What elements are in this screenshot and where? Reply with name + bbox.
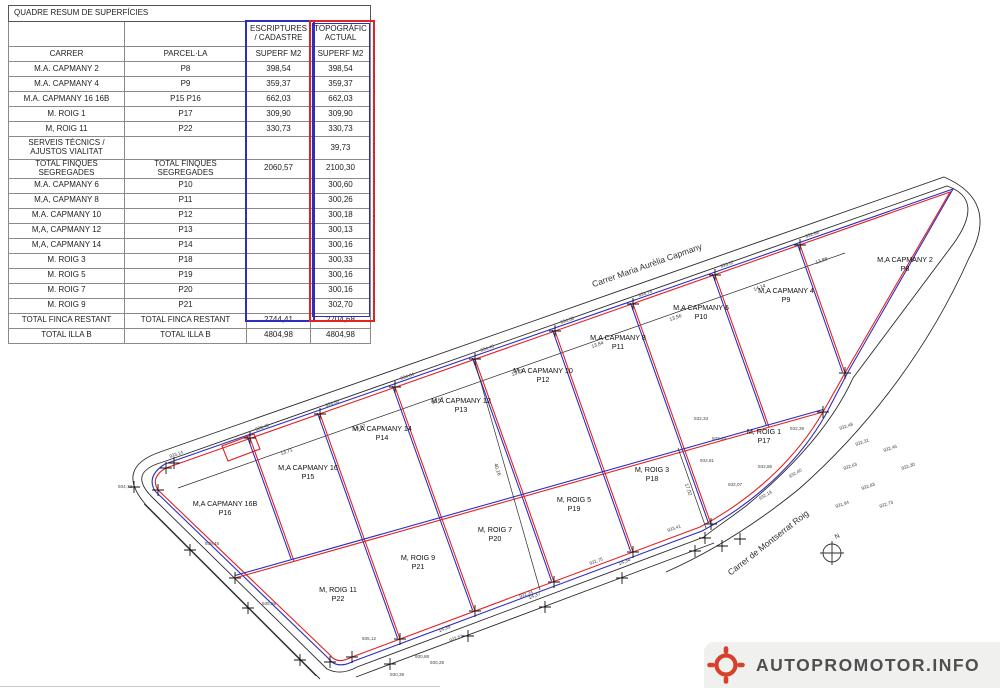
elevation-label: 932,48 — [839, 421, 854, 430]
division-line-blue — [522, 495, 552, 581]
table-cell-topografic: 300,60 — [311, 178, 371, 193]
elevation-label: 931,94 — [835, 499, 850, 508]
parcel-name-label: M, ROIG 5 — [557, 495, 591, 504]
table-cell-escriptures — [247, 208, 311, 223]
north-label: N — [834, 532, 841, 540]
table-cell-carrer: TOTAL FINCA RESTANT — [9, 313, 125, 328]
table-cell-escriptures — [247, 193, 311, 208]
survey-cross-icon — [627, 298, 639, 310]
table-cell-escriptures — [247, 253, 311, 268]
table-cell-topografic: 39,73 — [311, 137, 371, 160]
table-row: M. ROIG 3P18300,33 — [9, 253, 371, 268]
table-cell-parcella: P13 — [125, 223, 247, 238]
table-cell-parcella: P15 P16 — [125, 92, 247, 107]
table-row: SERVEIS TÈCNICS / AJUSTOS VIALITAT39,73 — [9, 137, 371, 160]
table-row: M.A. CAPMANY 10P12300,18 — [9, 208, 371, 223]
parcel-name-label: M,A CAPMANY 16 — [278, 463, 338, 472]
watermark-logo: AUTOPROMOTOR.INFO — [704, 642, 1000, 688]
table-cell-topografic: 300,16 — [311, 283, 371, 298]
table-cell-escriptures: 2060,57 — [247, 160, 311, 179]
table-cell-parcella: P20 — [125, 283, 247, 298]
elevation-label: 932,19 — [758, 489, 773, 501]
dimension-label: 14,34 — [618, 557, 632, 567]
table-cell-topografic: 2100,30 — [311, 160, 371, 179]
parcel-name-label: M, ROIG 11 — [319, 585, 357, 594]
table-cell-parcella: P17 — [125, 107, 247, 122]
table-cell-escriptures: 398,54 — [247, 62, 311, 77]
elevation-label: 935,12 — [362, 636, 376, 641]
survey-cross-icon — [716, 540, 728, 552]
table-cell-parcella: P10 — [125, 178, 247, 193]
table-cell-escriptures: 359,37 — [247, 77, 311, 92]
logo-text: AUTOPROMOTOR.INFO — [756, 655, 980, 676]
division-line-red — [442, 519, 475, 611]
table-cell-carrer: M. ROIG 1 — [9, 107, 125, 122]
parcel-code-label: P11 — [612, 342, 624, 351]
table-cell-carrer: M,A, CAPMANY 12 — [9, 223, 125, 238]
table-row: M,A, CAPMANY 8P11300,26 — [9, 193, 371, 208]
table-cell-carrer: M.A. CAPMANY 2 — [9, 62, 125, 77]
table-cell-carrer: TOTAL ILLA B — [9, 328, 125, 343]
table-cell-carrer: M.A. CAPMANY 16 16B — [9, 92, 125, 107]
table-cell-carrer: M,A, CAPMANY 14 — [9, 238, 125, 253]
survey-cross-icon — [384, 658, 396, 670]
table-cell-topografic: 300,26 — [311, 193, 371, 208]
elevation-label: 932,81 — [700, 458, 714, 463]
elevation-label: 932,33 — [694, 416, 708, 421]
table-cell-escriptures: 309,90 — [247, 107, 311, 122]
survey-cross-icon — [817, 406, 829, 418]
survey-cross-icon — [539, 601, 551, 613]
table-cell-escriptures — [247, 298, 311, 313]
table-row: M. ROIG 9P21302,70 — [9, 298, 371, 313]
parcel-code-label: P10 — [695, 312, 708, 321]
elevation-label: 932,52 — [449, 633, 464, 643]
elevation-label: 932,30 — [901, 461, 916, 470]
elevation-label: 932,46 — [883, 443, 898, 452]
division-line-red — [365, 541, 400, 639]
table-row: M.A. CAPMANY 4P9359,37359,37 — [9, 77, 371, 92]
survey-cross-icon — [314, 408, 326, 420]
parcel-code-label: P19 — [568, 504, 581, 513]
target-icon — [704, 645, 748, 685]
division-line-blue — [363, 540, 398, 638]
empty-cell — [9, 22, 125, 47]
table-row: TOTAL FINCA RESTANTTOTAL FINCA RESTANT27… — [9, 313, 371, 328]
parcel-name-label: M,A CAPMANY 10 — [513, 366, 573, 375]
table-row: M. ROIG 7P20300,16 — [9, 283, 371, 298]
dimension-label: 17,02 — [683, 483, 693, 497]
survey-cross-icon — [689, 545, 701, 557]
survey-cross-icon — [160, 462, 172, 474]
elevation-label: 930,28 — [430, 660, 444, 665]
table-cell-parcella: P12 — [125, 208, 247, 223]
table-cell-topografic: 398,54 — [311, 62, 371, 77]
col-header-parcella: PARCEL·LA — [125, 47, 247, 62]
elevation-label: 930,39 — [390, 672, 404, 677]
table-cell-parcella: P19 — [125, 268, 247, 283]
table-cell-escriptures — [247, 238, 311, 253]
division-line-blue — [631, 303, 683, 450]
parcel-name-label: M,A CAPMANY 14 — [352, 424, 412, 433]
parcel-name-label: M,A CAPMANY 4 — [758, 286, 814, 295]
division-line-red — [524, 496, 554, 582]
elevation-label: 930,88 — [415, 654, 429, 659]
parcel-name-label: M, ROIG 1 — [747, 427, 781, 436]
table-cell-carrer: M, ROIG 11 — [9, 122, 125, 137]
col-header-carrer: CARRER — [9, 47, 125, 62]
table-cell-parcella: P11 — [125, 193, 247, 208]
division-line-blue — [440, 518, 473, 610]
table-row: M.A. CAPMANY 6P10300,60 — [9, 178, 371, 193]
table-cell-parcella: TOTAL FINQUES SEGREGADES — [125, 160, 247, 179]
table-cell-carrer: M,A, CAPMANY 8 — [9, 193, 125, 208]
table-cell-topografic: 302,70 — [311, 298, 371, 313]
parcel-name-label: M,A CAPMANY 8 — [590, 333, 646, 342]
division-line-red — [605, 473, 633, 552]
elevation-label: 932,07 — [728, 482, 742, 487]
table-cell-parcella: P14 — [125, 238, 247, 253]
survey-cross-icon — [462, 630, 474, 642]
elevation-label: 932,63 — [843, 461, 858, 470]
sheet-edge-line — [0, 686, 440, 687]
division-line-red — [800, 245, 845, 373]
table-cell-escriptures: 2744,41 — [247, 313, 311, 328]
table-cell-topografic: 300,16 — [311, 238, 371, 253]
table-cell-topografic: 662,03 — [311, 92, 371, 107]
division-line-blue — [713, 274, 767, 426]
table-cell-topografic: 330,73 — [311, 122, 371, 137]
col-header-superf-topografic: SUPERF M2 — [311, 47, 371, 62]
parcel-code-label: P14 — [376, 433, 389, 442]
table-row: TOTAL FINQUES SEGREGADESTOTAL FINQUES SE… — [9, 160, 371, 179]
header-topografic: TOPOGRÀFIC ACTUAL — [311, 22, 371, 47]
parcel-name-label: M, ROIG 3 — [635, 465, 669, 474]
parcel-code-label: P9 — [782, 295, 791, 304]
table-cell-carrer: M. ROIG 7 — [9, 283, 125, 298]
survey-cross-icon — [346, 651, 358, 663]
table-cell-topografic: 2704,68 — [311, 313, 371, 328]
parcel-name-label: M, ROIG 9 — [401, 553, 435, 562]
division-line-red — [395, 387, 442, 519]
table-title: QUADRE RESUM DE SUPERFÍCIES — [9, 6, 371, 22]
table-cell-escriptures — [247, 178, 311, 193]
table-row: M,A, CAPMANY 12P13300,13 — [9, 223, 371, 238]
table-row: M, ROIG 11P22330,73330,73 — [9, 122, 371, 137]
table-cell-carrer: M.A. CAPMANY 10 — [9, 208, 125, 223]
table-cell-carrer: M.A. CAPMANY 6 — [9, 178, 125, 193]
elevation-label: 932,39 — [790, 426, 804, 431]
division-line-blue — [603, 472, 631, 551]
table-row: TOTAL ILLA BTOTAL ILLA B4804,984804,98 — [9, 328, 371, 343]
table-cell-topografic: 4804,98 — [311, 328, 371, 343]
interior-dimension-lines — [475, 362, 706, 590]
parcel-code-label: P12 — [537, 375, 550, 384]
table-cell-carrer: TOTAL FINQUES SEGREGADES — [9, 160, 125, 179]
table-cell-escriptures: 330,73 — [247, 122, 311, 137]
elevation-label: 932,40 — [788, 467, 803, 479]
parcel-name-label: M,A CAPMANY 16B — [193, 499, 258, 508]
division-line-red — [555, 331, 605, 473]
survey-cross-icon — [616, 572, 628, 584]
elevation-label: 935,89 — [262, 601, 276, 606]
table-cell-parcella: P9 — [125, 77, 247, 92]
elevation-label: 932,73 — [879, 499, 894, 508]
elevation-label: 935,45 — [205, 541, 219, 546]
surface-summary-table: QUADRE RESUM DE SUPERFÍCIES ESCRIPTURES … — [8, 5, 371, 344]
parcel-name-label: M,A CAPMANY 12 — [431, 396, 491, 405]
division-line-red — [633, 304, 685, 451]
parcel-name-label: M,A CAPMANY 2 — [877, 255, 933, 264]
elevation-label: 933,50 — [325, 398, 340, 407]
parcel-code-label: P8 — [901, 264, 910, 273]
table-cell-topografic: 300,18 — [311, 208, 371, 223]
table-cell-parcella: P21 — [125, 298, 247, 313]
survey-cross-icon — [699, 532, 711, 544]
table-cell-escriptures — [247, 223, 311, 238]
table-cell-parcella: P18 — [125, 253, 247, 268]
table-cell-escriptures: 4804,98 — [247, 328, 311, 343]
table-cell-carrer: M. ROIG 3 — [9, 253, 125, 268]
table-row: M,A, CAPMANY 14P14300,16 — [9, 238, 371, 253]
elevation-label: 932,86 — [758, 464, 772, 469]
division-line-red — [715, 275, 769, 427]
survey-cross-icon — [324, 656, 336, 668]
table-cell-escriptures: 662,03 — [247, 92, 311, 107]
north-indicator: N — [820, 532, 844, 565]
parcel-code-label: P20 — [489, 534, 502, 543]
dimension-label: 13,71 — [280, 447, 294, 457]
col-header-superf-escriptures: SUPERF M2 — [247, 47, 311, 62]
table-row: M.A. CAPMANY 2P8398,54398,54 — [9, 62, 371, 77]
elevation-label: 933,41 — [667, 523, 682, 533]
table-cell-topografic: 300,16 — [311, 268, 371, 283]
street-name-label: Carrer de Montserrat Roig — [726, 508, 811, 577]
parcel-name-label: M, ROIG 7 — [478, 525, 512, 534]
table-row: M.A. CAPMANY 16 16BP15 P16662,03662,03 — [9, 92, 371, 107]
table-cell-carrer: M. ROIG 5 — [9, 268, 125, 283]
parcel-code-label: P17 — [758, 436, 771, 445]
division-line-red — [320, 414, 365, 541]
division-line-blue — [553, 330, 603, 472]
table-cell-parcella: TOTAL ILLA B — [125, 328, 247, 343]
table-cell-parcella: TOTAL FINCA RESTANT — [125, 313, 247, 328]
table-cell-parcella: P8 — [125, 62, 247, 77]
north-crosshair-icon — [820, 541, 844, 565]
parcel-code-label: P18 — [646, 474, 659, 483]
header-escriptures: ESCRIPTURES / CADASTRE — [247, 22, 311, 47]
dimension-label: 13,88 — [815, 256, 829, 266]
empty-cell — [125, 22, 247, 47]
table-cell-topografic: 300,13 — [311, 223, 371, 238]
parcel-code-label: P16 — [219, 508, 232, 517]
parcel-code-label: P15 — [302, 472, 315, 481]
table-cell-carrer: M.A. CAPMANY 4 — [9, 77, 125, 92]
table-cell-escriptures — [247, 283, 311, 298]
table-cell-carrer: SERVEIS TÈCNICS / AJUSTOS VIALITAT — [9, 137, 125, 160]
parcel-code-label: P22 — [332, 594, 345, 603]
elevation-label: 934,72 — [118, 484, 132, 489]
table-cell-parcella — [125, 137, 247, 160]
table-row: M. ROIG 5P19300,16 — [9, 268, 371, 283]
elevation-label: 932,75 — [589, 556, 604, 566]
table-cell-escriptures — [247, 137, 311, 160]
elevation-label: 932,49 — [712, 436, 726, 441]
table-cell-topografic: 300,33 — [311, 253, 371, 268]
table-cell-escriptures — [247, 268, 311, 283]
table-cell-topografic: 309,90 — [311, 107, 371, 122]
table-row: M. ROIG 1P17309,90309,90 — [9, 107, 371, 122]
table-cell-topografic: 359,37 — [311, 77, 371, 92]
table-cell-parcella: P22 — [125, 122, 247, 137]
elevation-label: 932,31 — [855, 437, 870, 446]
parcel-name-label: M,A CAPMANY 6 — [673, 303, 729, 312]
dimension-label: 40,16 — [492, 463, 502, 477]
table-cell-carrer: M. ROIG 9 — [9, 298, 125, 313]
elevation-label: 932,83 — [861, 481, 876, 490]
survey-cross-icon — [548, 576, 560, 588]
parcel-code-label: P21 — [412, 562, 425, 571]
parcel-code-label: P13 — [455, 405, 468, 414]
